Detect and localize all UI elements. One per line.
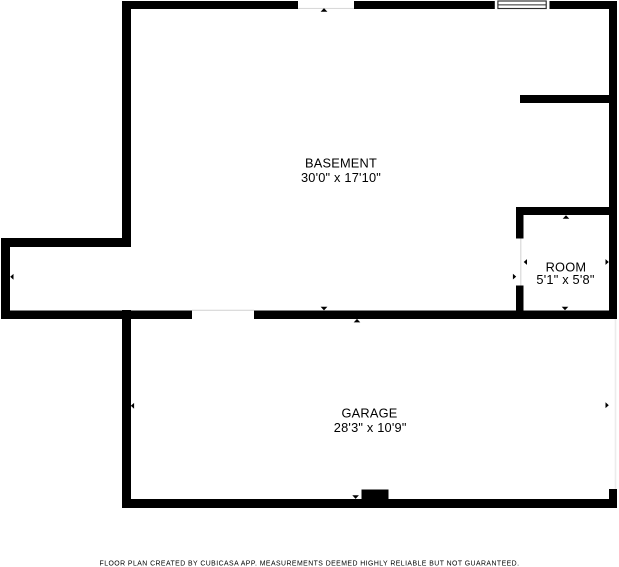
svg-text:28'3" x 10'9": 28'3" x 10'9" — [334, 420, 407, 435]
svg-text:FLOOR PLAN CREATED BY CUBICASA: FLOOR PLAN CREATED BY CUBICASA APP. MEAS… — [100, 561, 520, 567]
svg-text:30'0" x 17'10": 30'0" x 17'10" — [301, 170, 381, 185]
svg-text:5'1" x 5'8": 5'1" x 5'8" — [536, 272, 594, 287]
svg-text:BASEMENT: BASEMENT — [305, 156, 377, 171]
svg-text:GARAGE: GARAGE — [342, 405, 398, 420]
